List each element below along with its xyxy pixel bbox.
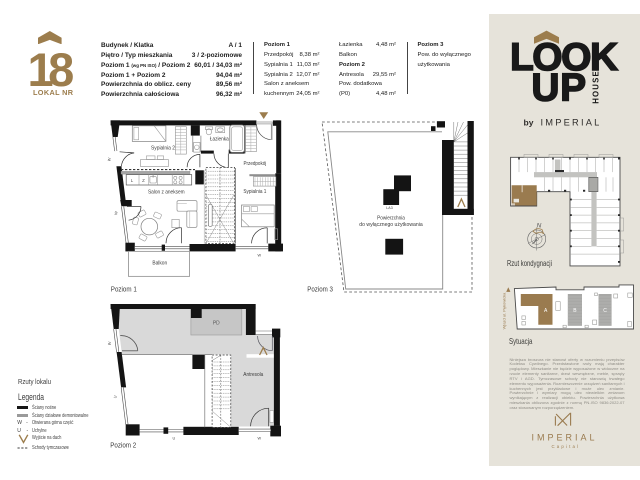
svg-text:Z: Z: [142, 178, 145, 183]
svg-text:Łazienka: Łazienka: [210, 137, 229, 143]
svg-text:W: W: [108, 341, 113, 346]
svg-text:Wjazd ul. Pękowicka: Wjazd ul. Pękowicka: [502, 292, 507, 329]
svg-text:U: U: [173, 436, 176, 440]
svg-text:HOUSE: HOUSE: [592, 70, 601, 104]
svg-text:W: W: [114, 211, 119, 216]
svg-text:W: W: [258, 436, 262, 440]
svg-text:Salon z aneksem: Salon z aneksem: [148, 189, 185, 195]
svg-text:Capital: Capital: [552, 444, 581, 449]
svg-text:do wyłącznego użytkowania: do wyłącznego użytkowania: [359, 222, 422, 228]
svg-text:Powierzchnia: Powierzchnia: [377, 215, 405, 221]
svg-text:C: C: [603, 308, 607, 314]
svg-text:Przedpokój: Przedpokój: [244, 161, 267, 167]
svg-text:Poziom 3: Poziom 3: [307, 284, 333, 293]
svg-text:IMPERIAL: IMPERIAL: [541, 118, 602, 128]
svg-text:UP: UP: [531, 67, 586, 110]
svg-text:PD: PD: [213, 320, 220, 326]
svg-text:Sypialnia 1: Sypialnia 1: [243, 189, 266, 195]
svg-text:W: W: [107, 157, 112, 162]
svg-text:Poziom 2: Poziom 2: [110, 441, 136, 450]
svg-text:Antresola: Antresola: [243, 372, 263, 378]
svg-text:U: U: [113, 395, 117, 399]
svg-text:IMPERIAL: IMPERIAL: [532, 433, 598, 443]
svg-text:Poziom 1: Poziom 1: [111, 285, 137, 294]
svg-text:by: by: [524, 118, 534, 128]
svg-text:Balkon: Balkon: [152, 260, 167, 266]
svg-text:LA3: LA3: [386, 206, 392, 210]
svg-text:W: W: [258, 254, 262, 258]
svg-text:Sypialnia 2: Sypialnia 2: [151, 145, 175, 151]
